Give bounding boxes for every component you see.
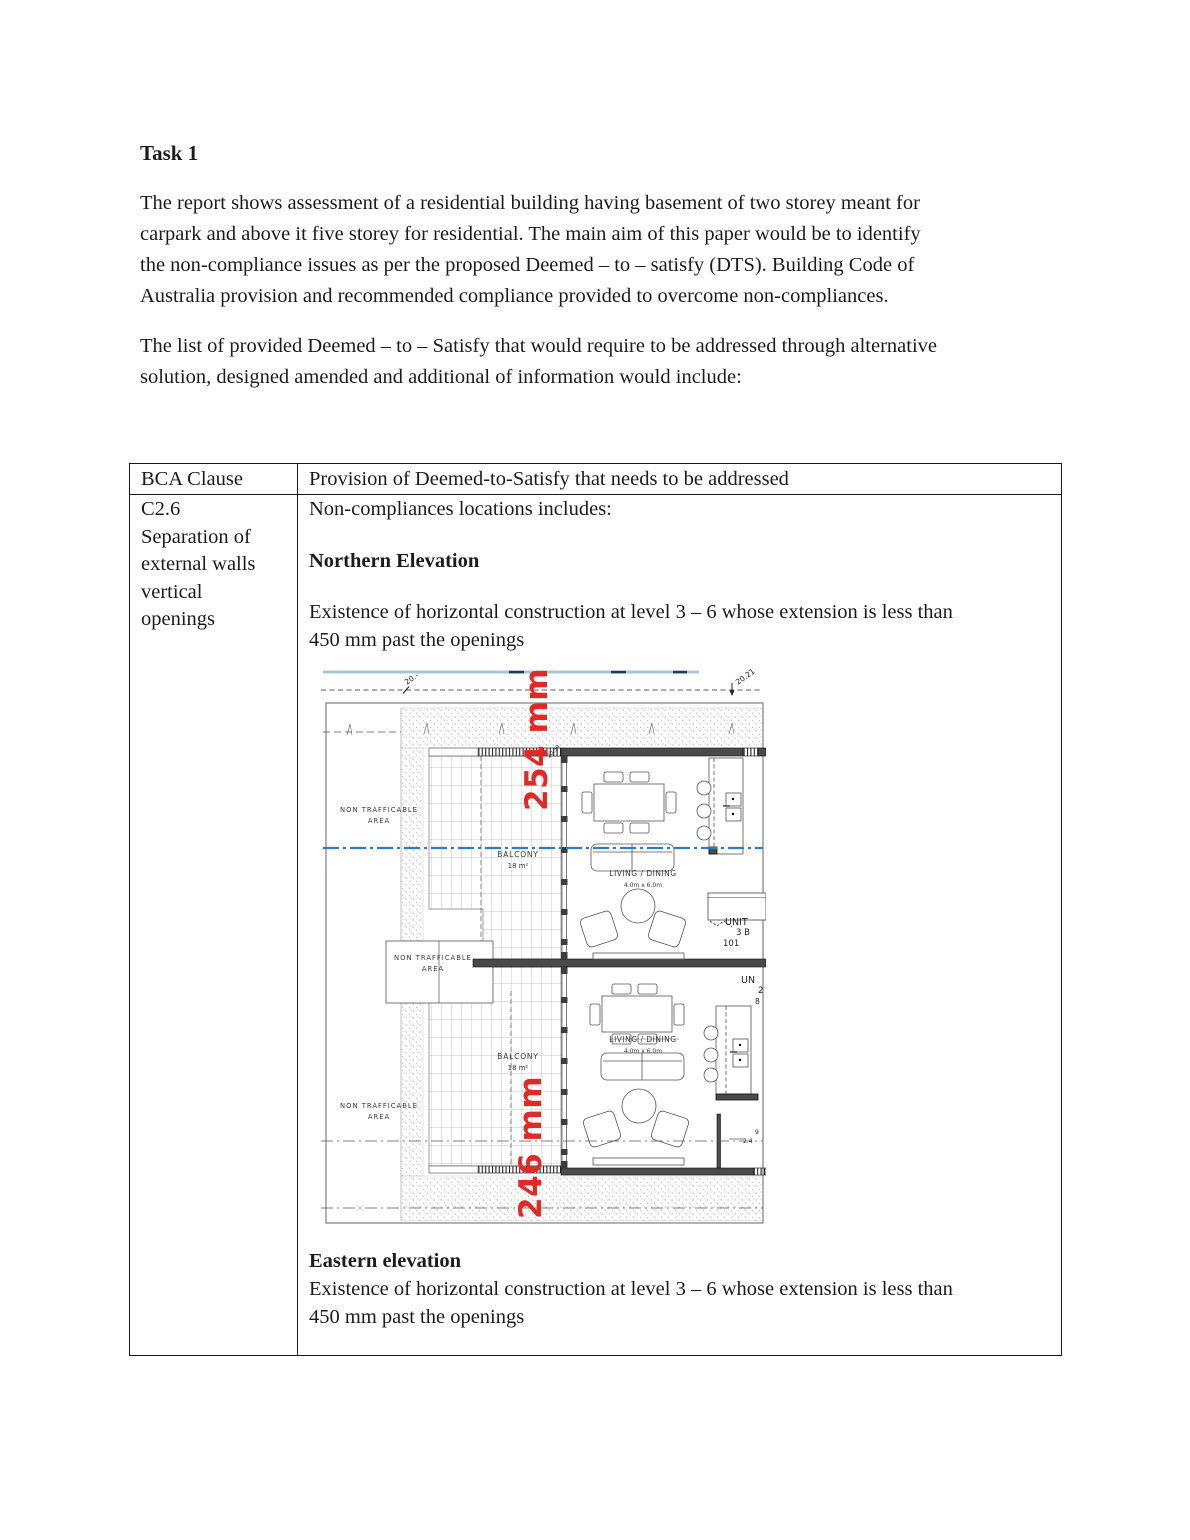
unit1-furniture [579,758,743,959]
red-dim-254: 254 mm [519,668,555,811]
non-trafficable-mid-1: NON TRAFFICABLE [394,954,472,962]
unit2-name-label: UN [741,975,755,986]
unit2-line3-label: 8 [755,997,760,1006]
bca-table: BCA Clause Provision of Deemed-to-Satisf… [129,463,1062,1356]
non-trafficable-top-2: AREA [368,817,390,825]
non-trafficable-top-1: NON TRAFFICABLE [340,806,418,814]
living-size-upper: 4.0m x 6.0m [624,882,662,889]
non-trafficable-mid-2: AREA [422,965,444,973]
red-dim-246: 246 mm [513,1076,549,1219]
clause-cell: C2.6 Separation of external walls vertic… [141,496,255,634]
unit1-name-label: UNIT [725,917,748,928]
table-column-divider [297,464,298,1355]
header-provision: Provision of Deemed-to-Satisfy that need… [309,466,789,494]
page-title: Task 1 [140,140,198,166]
balcony-lower-label: BALCONY [497,1052,538,1061]
list-intro-paragraph: The list of provided Deemed – to – Satis… [140,331,1080,393]
eastern-elevation-body: Existence of horizontal construction at … [309,1276,1069,1331]
unit2-line2-label: 2 [758,986,763,996]
unit1-labels: UNIT 3 B 101 [708,893,766,949]
unit1-number-label: 101 [723,939,739,949]
living-size-lower: 4.0m x 6.0m [624,1048,662,1055]
balcony-upper-label: BALCONY [497,850,538,859]
glazed-wall-upper [561,756,568,959]
living-dining-lower: LIVING / DINING [609,1035,676,1044]
northern-elevation-body: Existence of horizontal construction at … [309,599,1069,654]
dim-label-right: 20.21 [734,667,757,687]
balcony-upper-area: 18 m² [508,862,529,870]
balcony-lower-area: 18 m² [508,1064,529,1072]
northern-elevation-heading: Northern Elevation [309,548,479,576]
unit1-beds-label: 3 B [736,928,750,938]
header-bca-clause: BCA Clause [141,466,243,494]
small-dim-a: 9 [755,1129,759,1136]
document-page: Task 1 The report shows assessment of a … [0,0,1190,1540]
non-trafficable-bottom-2: AREA [368,1113,390,1121]
noncompliance-intro: Non-compliances locations includes: [309,496,612,524]
unit2-furniture [582,984,758,1165]
table-header-divider [130,494,1061,495]
small-dim-b: 2.4 [743,1138,753,1145]
living-dining-upper: LIVING / DINING [609,869,676,878]
intro-paragraph: The report shows assessment of a residen… [140,188,1080,312]
floor-plan-image: 20.- 20.21 [321,659,766,1234]
glazed-wall-lower [561,967,568,1168]
blue-grid-line [323,671,699,674]
non-trafficable-bottom-1: NON TRAFFICABLE [340,1102,418,1110]
eastern-elevation-heading: Eastern elevation [309,1248,461,1276]
